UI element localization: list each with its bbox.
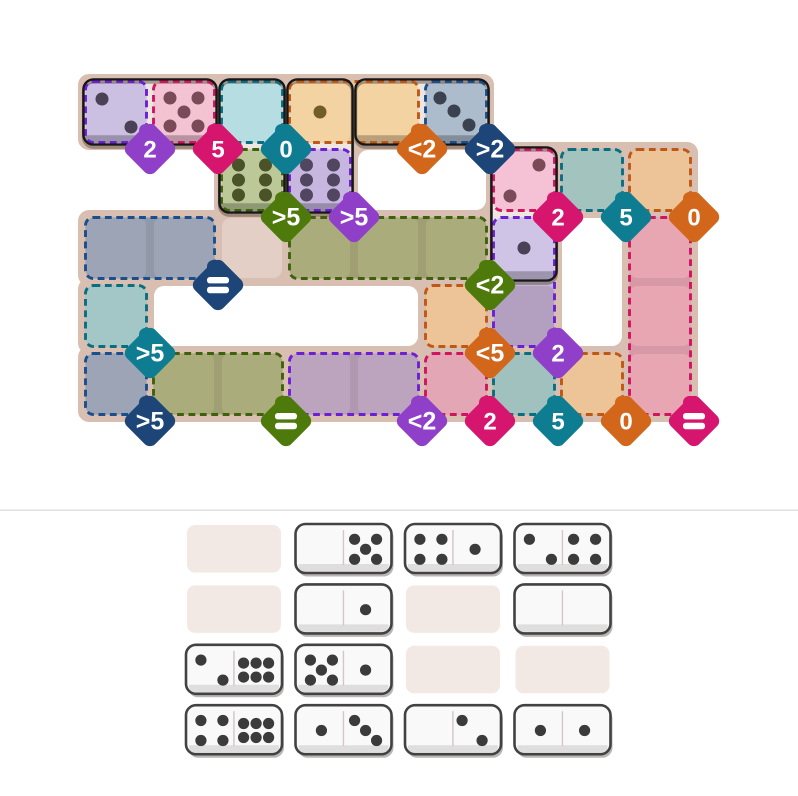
svg-text:0: 0 — [279, 137, 292, 164]
svg-text:<5: <5 — [476, 340, 505, 368]
svg-text:<2: <2 — [408, 136, 437, 164]
svg-text:5: 5 — [619, 205, 632, 232]
svg-text:>5: >5 — [136, 408, 165, 436]
svg-text:0: 0 — [687, 205, 700, 232]
svg-text:5: 5 — [211, 137, 224, 164]
svg-text:>5: >5 — [272, 204, 301, 232]
svg-text:2: 2 — [483, 409, 496, 436]
svg-text:0: 0 — [619, 409, 632, 436]
svg-text:2: 2 — [143, 137, 156, 164]
svg-text:<2: <2 — [408, 408, 437, 436]
svg-text:2: 2 — [551, 341, 564, 368]
svg-text:<2: <2 — [476, 272, 505, 300]
svg-text:5: 5 — [551, 409, 564, 436]
svg-text:2: 2 — [551, 205, 564, 232]
svg-text:>2: >2 — [476, 136, 505, 164]
svg-text:>5: >5 — [340, 204, 369, 232]
svg-text:>5: >5 — [136, 340, 165, 368]
